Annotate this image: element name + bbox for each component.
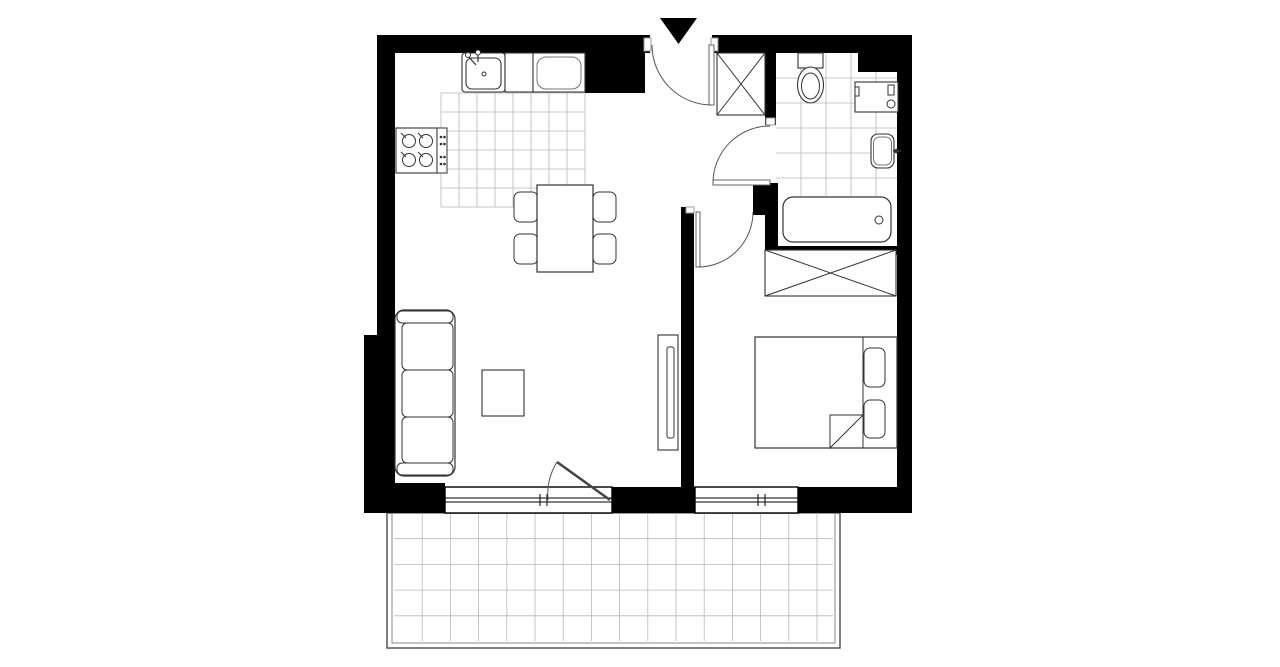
bedroom-door-jamb-wall <box>753 183 768 215</box>
bathroom-door-jamb <box>766 118 775 125</box>
bedroom-door-leaf <box>696 212 700 267</box>
bedroom-window-frame <box>695 487 798 513</box>
kitchen-sink-drain <box>482 72 486 76</box>
coffee-table <box>482 370 524 416</box>
living-window-frame <box>445 487 612 513</box>
bathtub-drain <box>875 216 883 224</box>
kitchen-corner-wall <box>585 53 645 93</box>
stove-control-panel <box>437 128 447 173</box>
dining-table <box>537 185 593 272</box>
right-wall <box>897 53 912 513</box>
tv-screen <box>667 347 674 438</box>
balcony-floor-tiles <box>394 513 833 641</box>
floor-plan-page <box>0 0 1280 667</box>
washing-machine-knob <box>887 100 895 108</box>
entrance-door-arc <box>652 45 712 105</box>
dining-chair-1 <box>514 192 538 222</box>
toilet-tank <box>798 53 823 68</box>
bed-pillow-2 <box>864 400 885 438</box>
bottom-left-corner-wall <box>364 483 445 513</box>
bottom-wall-right <box>798 487 912 513</box>
balcony-outer-border <box>387 513 840 648</box>
hall-bathroom-wall <box>765 35 776 125</box>
living-bedroom-divider-wall <box>681 207 694 487</box>
balcony-inner-border <box>392 513 835 643</box>
sofa-armrest-bottom <box>397 463 453 475</box>
bedroom-door-jamb <box>686 207 694 213</box>
kitchen-faucet-knob-2 <box>476 50 481 55</box>
bed-pillow-1 <box>864 348 885 387</box>
bottom-wall-middle <box>612 487 695 513</box>
sofa-seat-1 <box>402 323 453 370</box>
entrance-door-leaf <box>709 45 714 105</box>
bathroom-door-arc <box>713 126 770 183</box>
sofa-seat-2 <box>402 370 453 417</box>
top-wall-left <box>377 35 650 53</box>
left-wall-upper <box>377 35 395 335</box>
dining-chair-4 <box>593 234 616 264</box>
kitchen-faucet-knob-1 <box>466 53 471 58</box>
kitchen-counter <box>505 53 533 92</box>
washing-machine-drawer <box>888 85 894 95</box>
entrance-jamb-left <box>644 38 651 51</box>
bathroom-door-leaf <box>713 180 770 185</box>
left-wall-lower <box>364 335 395 487</box>
bathroom-floor-tiles <box>776 53 897 196</box>
entrance-marker-triangle <box>660 18 697 44</box>
dining-chair-3 <box>593 192 616 222</box>
bedroom-door-arc <box>698 212 753 267</box>
washing-machine-door-tick <box>855 87 859 96</box>
top-wall-right <box>712 35 912 53</box>
sofa-seat-3 <box>402 417 453 463</box>
sofa-armrest-top <box>397 311 453 323</box>
dining-chair-2 <box>514 234 538 264</box>
bathroom-sink-faucet-knob <box>894 149 899 154</box>
floor-plan <box>0 0 1280 667</box>
